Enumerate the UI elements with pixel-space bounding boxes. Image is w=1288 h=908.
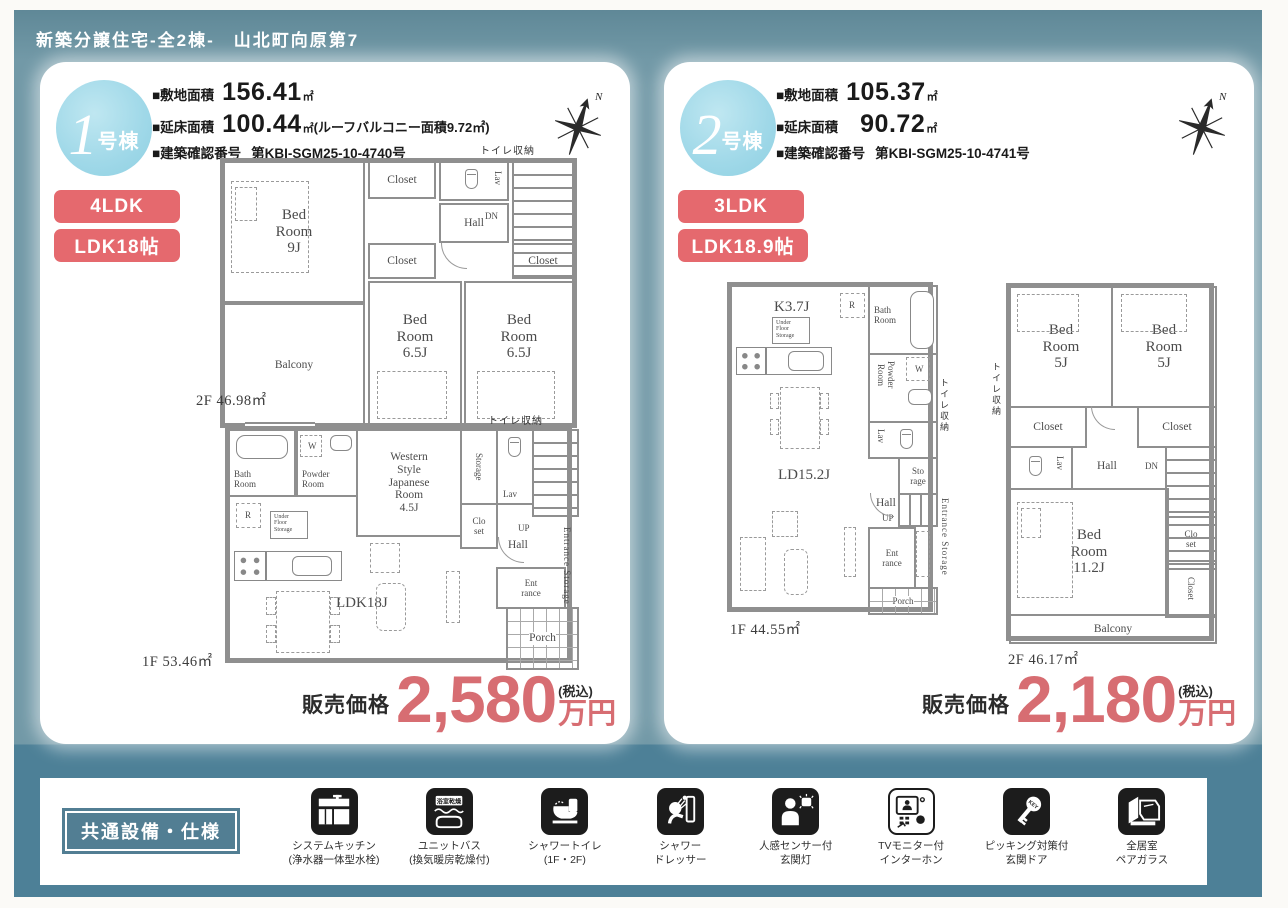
chair-furniture [770,419,779,435]
room-porch: Porch [868,587,938,615]
basin-fixture [908,389,932,405]
room-storage: Storage [460,429,498,505]
feature-system-kitchen: システムキッチン (浄水器一体型水栓) [278,788,390,880]
building-1-2f-plan: Bed Room 9J Balcony Closet Lav DN Hall C… [220,158,577,428]
toilet-storage-annotation: トイレ収納 [488,412,543,427]
building-number: 1 [69,106,98,176]
spec-value: 第KBI-SGM25-10-4741号 [875,142,1030,162]
room-label: Storage [474,453,484,481]
spec-value: 105.37 [846,78,925,107]
common-equipment-heading: 共通設備・仕様 [62,808,240,854]
price-amount: 2,580 [396,670,556,729]
building-1-specs: ■敷地面積 156.41 ㎡ ■延床面積 100.44 ㎡ (ルーフバルコニー面… [152,78,604,165]
stairs-up [898,493,938,527]
pillow-furniture [1021,508,1041,538]
room-label: Porch [529,632,556,645]
fridge-label: R [849,300,855,310]
room-closet: Clo set [460,503,498,549]
bed-furniture [1121,294,1187,332]
underfloor-storage-box: Under Floor Storage [772,317,810,344]
compass-icon: N [548,90,608,156]
room-entrance: Ent rance [496,567,566,609]
building-1-badge: 1 号棟 [56,80,152,176]
spec-site-area: ■敷地面積 105.37 ㎡ [776,78,1228,107]
room-label: Western Style Japanese Room 4.5J [389,451,430,515]
price-unit: 万円 [558,700,616,729]
building-2-2f-plan: Bed Room 5J Bed Room 5J Closet Closet La… [1006,283,1214,641]
room-hall: Hall [439,203,509,243]
feature-caption: ピッキング対策付 玄関ドア [985,840,1069,867]
unit-bath-icon: 浴室乾燥 [426,788,473,835]
spec-unit: ㎡ [303,120,314,136]
feature-tv-intercom: TVモニター付 インターホン [855,788,967,880]
building-2-1f-plan: K3.7J R Under Floor Storage Bath Room Po… [727,282,933,612]
feature-name: シャワートイレ [528,840,602,854]
shower-dresser-icon [657,788,704,835]
stairs-up [532,429,579,517]
common-equipment-panel: 共通設備・仕様 システムキッチン (浄水器一体型水栓) [40,778,1207,885]
bed-furniture [377,371,447,419]
feature-caption: シャワートイレ (1F・2F) [528,840,602,867]
feature-sub: (浄水器一体型水栓) [289,854,380,868]
spec-value: 90.72 [860,110,925,139]
sofa-furniture [740,537,766,591]
room-label: Bath Room [234,469,256,489]
bathtub-fixture [236,435,288,459]
sofa-furniture [784,549,808,595]
feature-caption: システムキッチン (浄水器一体型水栓) [289,840,380,867]
building-2-panel: 2 号棟 ■敷地面積 105.37 ㎡ ■延床面積 90.72 ㎡ ■建築確認番… [664,62,1254,744]
building-1-panel: 1 号棟 ■敷地面積 156.41 ㎡ ■延床面積 100.44 ㎡ (ルーフバ… [40,62,630,744]
spec-floor-area: ■延床面積 100.44 ㎡ (ルーフバルコニー面積9.72㎡) [152,110,604,139]
building-1-price: 販売価格 2,580 (税込) 万円 [302,670,616,729]
feature-name: 全居室 [1116,840,1168,854]
tv-board-furniture [446,571,460,623]
pillow-furniture [235,187,257,221]
building-2-price: 販売価格 2,180 (税込) 万円 [922,670,1236,729]
room-label: Bed Room 6.5J [501,312,538,362]
chair-furniture [820,393,829,409]
room-label: Closet [387,174,416,187]
feature-sub: (1F・2F) [528,854,602,868]
feature-name: シャワー [654,840,707,854]
room-label: Porch [893,596,914,606]
room-closet: Closet [368,243,436,279]
stairs-up-label: UP [518,523,530,533]
kitchen-label: K3.7J [774,299,809,316]
door-arc [441,243,467,269]
room-label: Closet [387,255,416,268]
system-kitchen-icon [311,788,358,835]
underfloor-storage-label: Under Floor Storage [776,320,794,339]
spec-confirmation-number: ■建築確認番号 第KBI-SGM25-10-4741号 [776,142,1228,162]
kitchen-sink [292,556,332,576]
feature-name: システムキッチン [289,840,380,854]
chair-furniture [330,625,340,643]
toilet-storage-annotation: トイレ収納 [480,142,535,157]
hall-label: Hall [1097,460,1117,473]
building-number: 2 [693,106,722,176]
room-storage: Sto rage [898,457,938,495]
room-closet: Closet [1137,406,1217,448]
room-label: Hall [464,217,484,230]
washer-label: W [915,364,924,374]
room-balcony: Balcony [1009,614,1217,644]
floor-area-label: 2F 46.98㎡ [196,389,267,410]
pair-glass-icon [1118,788,1165,835]
stove-fixture [234,551,266,581]
room-label: Powder Room [302,469,330,489]
room-entrance: Ent rance [868,527,916,589]
building-number-suffix: 号棟 [98,125,140,176]
spec-value: 156.41 [222,78,301,107]
tag-label: 4LDK [90,196,144,218]
feature-sub: 玄関ドア [985,854,1069,868]
fridge-label: R [245,510,251,520]
ldk-size-tag: LDK18.9帖 [678,229,808,262]
feature-sub: (換気暖房乾燥付) [409,854,490,868]
spec-site-area: ■敷地面積 156.41 ㎡ [152,78,604,107]
washer-box: W [300,435,322,457]
feature-caption: ユニットバス (換気暖房乾燥付) [409,840,490,867]
room-closet: Closet [368,161,436,199]
room-closet: Closet [1009,406,1087,448]
feature-unit-bath: 浴室乾燥 ユニットバス (換気暖房乾燥付) [393,788,505,880]
room-label: Balcony [275,359,313,372]
tag-label: LDK18.9帖 [691,232,794,259]
building-2-badge: 2 号棟 [680,80,776,176]
chair-furniture [330,597,340,615]
room-label: Closet [1186,577,1196,600]
bed-furniture [1017,294,1079,332]
room-label: Lav [876,429,886,443]
feature-shower-dresser: シャワー ドレッサー [624,788,736,880]
toilet-storage-annotation: トイレ収納 [990,362,1003,417]
spec-label: ■敷地面積 [776,84,838,104]
price-label: 販売価格 [302,689,390,729]
spec-label: ■建築確認番号 [776,142,865,162]
price-amount: 2,180 [1016,670,1176,729]
bath-dryer-label: 浴室乾燥 [437,797,462,805]
room-label: Lav [1055,456,1065,470]
feature-caption: TVモニター付 インターホン [878,840,944,867]
ld-label: LD15.2J [778,467,830,484]
sensor-light-icon [772,788,819,835]
feature-caption: 全居室 ペアガラス [1116,840,1168,867]
feature-sub: ペアガラス [1116,854,1168,868]
dining-table-furniture [780,387,820,449]
tv-intercom-icon [888,788,935,835]
price-label: 販売価格 [922,689,1010,729]
room-label: Ent rance [882,548,901,568]
feature-caption: シャワー ドレッサー [654,840,707,867]
room-label: Bed Room 6.5J [397,312,434,362]
feature-caption: 人感センサー付 玄関灯 [759,840,833,867]
toilet-fixture [1029,456,1042,476]
feature-name: 人感センサー付 [759,840,833,854]
toilet-storage-annotation: トイレ収納 [938,378,951,433]
feature-name: ユニットバス [409,840,490,854]
table-furniture [370,543,400,573]
room-label: Sto rage [910,466,926,486]
room-label: Ent rance [521,578,540,598]
heading-label: 共通設備・仕様 [81,818,221,844]
building-1-1f-plan: Bath Room Powder Room W Western Style Ja… [225,426,572,663]
room-label: Lav [503,489,517,499]
floor-area-label: 1F 44.55㎡ [730,618,801,639]
basin-fixture [330,435,352,451]
compass-icon: N [1172,90,1232,156]
underfloor-storage-label: Under Floor Storage [274,514,292,533]
tag-label: LDK18帖 [74,232,159,259]
spec-label: ■延床面積 [152,116,214,136]
sofa-furniture [376,583,406,631]
feature-sensor-light: 人感センサー付 玄関灯 [740,788,852,880]
feature-pair-glass: 全居室 ペアガラス [1086,788,1198,880]
bathtub-fixture [910,291,934,349]
compass-n-label: N [1218,91,1227,103]
fridge-box: R [236,503,261,528]
compass-n-label: N [594,91,603,103]
stove-fixture [736,347,766,375]
entrance-storage-label: Entrance Storage [562,527,572,605]
room-label: Bed Room 11.2J [1071,527,1108,577]
room-porch: Porch [506,607,579,670]
spec-label: ■延床面積 [776,116,838,136]
key-icon: KEY [1003,788,1050,835]
room-label: Closet [1162,421,1191,434]
chair-furniture [266,597,276,615]
floor-area-label: 1F 53.46㎡ [142,650,213,671]
room-label: Balcony [1094,623,1132,636]
room-japanese: Western Style Japanese Room 4.5J [356,429,462,537]
toilet-fixture [508,437,521,457]
spec-note: (ルーフバルコニー面積9.72㎡) [314,117,490,136]
tv-board-furniture [844,527,856,577]
room-closet: Closet [1165,560,1217,618]
toilet-fixture [900,429,913,449]
room-label: Closet [528,255,557,268]
spec-label: ■敷地面積 [152,84,214,104]
spec-value: 100.44 [222,110,301,139]
table-furniture [772,511,798,537]
washer-label: W [308,441,317,451]
room-label: Lav [493,171,503,185]
fridge-box: R [840,293,865,318]
room-closet: Clo set [1165,516,1217,562]
kitchen-sink [788,351,824,371]
feature-sub: ドレッサー [654,854,707,868]
spec-unit: ㎡ [926,120,937,136]
room-label: Powder Room [876,361,896,389]
feature-shower-toilet: シャワートイレ (1F・2F) [509,788,621,880]
ldk-size-tag: LDK18帖 [54,229,180,262]
shower-toilet-icon [541,788,588,835]
dining-table-furniture [276,591,330,653]
door-arc [498,537,524,563]
room-closet: Closet [512,243,574,279]
feature-sub: インターホン [878,854,944,868]
spec-unit: ㎡ [303,88,314,104]
door-arc [870,493,894,517]
layout-tag: 3LDK [678,190,804,223]
building-number-suffix: 号棟 [722,125,764,176]
feature-name: ピッキング対策付 [985,840,1069,854]
toilet-fixture [465,169,478,189]
door-arc [1091,406,1115,430]
price-unit: 万円 [1178,700,1236,729]
spec-floor-area: ■延床面積 90.72 ㎡ [776,110,1228,139]
feature-sub: 玄関灯 [759,854,833,868]
feature-name: TVモニター付 [878,840,944,854]
entrance-storage-label: Entrance Storage [940,498,950,576]
washer-box: W [906,357,930,381]
stairs-dn-label: DN [1145,461,1158,471]
room-label: Bath Room [874,305,896,325]
tag-label: 3LDK [714,196,768,218]
layout-tag: 4LDK [54,190,180,223]
room-label: Closet [1033,421,1062,434]
building-2-specs: ■敷地面積 105.37 ㎡ ■延床面積 90.72 ㎡ ■建築確認番号 第KB… [776,78,1228,165]
chair-furniture [770,393,779,409]
feature-list: システムキッチン (浄水器一体型水栓) 浴室乾燥 ユニットバス (換気暖房乾燥付… [278,788,1198,880]
spec-unit: ㎡ [927,88,938,104]
flyer-background: 新築分譲住宅-全2棟- 山北町向原第7 1 号棟 ■敷地面積 156.41 ㎡ … [14,10,1262,897]
chair-furniture [266,625,276,643]
entrance-storage-shelf [916,531,930,577]
room-label: Clo set [472,516,485,536]
chair-furniture [820,419,829,435]
page-title: 新築分譲住宅-全2棟- 山北町向原第7 [36,26,359,51]
underfloor-storage-box: Under Floor Storage [270,511,308,539]
room-label: Clo set [1184,529,1197,549]
feature-pick-proof-door: KEY ピッキング対策付 玄関ドア [971,788,1083,880]
